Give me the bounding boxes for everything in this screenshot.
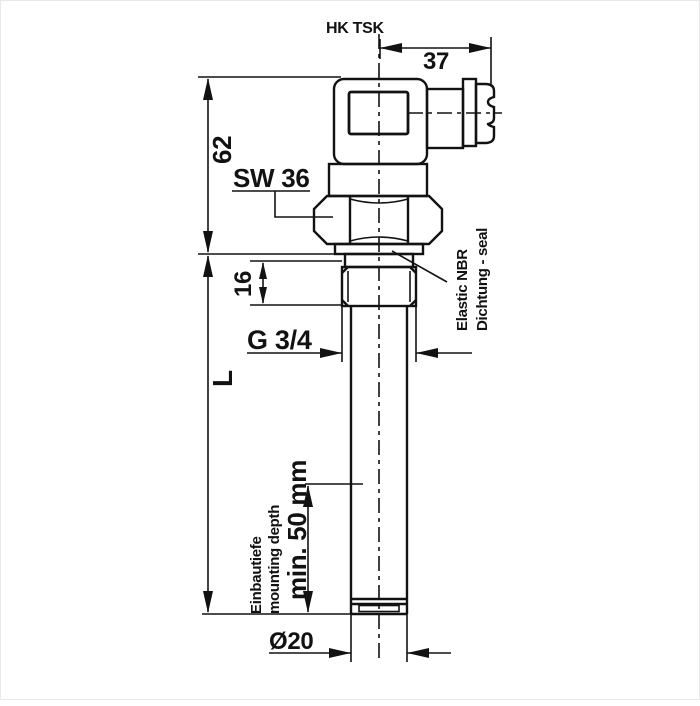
label-type: HK TSK: [326, 20, 385, 37]
dim-37-value: 37: [423, 48, 449, 75]
mounting-depth-label-en: mounting depth: [266, 505, 283, 614]
label-wrench-size: SW 36: [232, 163, 333, 217]
sw36-value: SW 36: [233, 163, 310, 193]
seal-label-en: Dichtung - seal: [474, 228, 491, 331]
mounting-depth-value: min. 50 mm: [282, 460, 312, 600]
seal-label-de: Elastic NBR: [454, 249, 471, 331]
dim-16-value: 16: [230, 271, 257, 297]
dim-L-value: L: [207, 370, 238, 387]
dim-62-value: 62: [207, 136, 237, 164]
dim-thread-size: G 3/4: [247, 307, 472, 362]
technical-drawing: 37 62 SW 36 16 Elastic NBR Dichtung - se…: [1, 1, 700, 701]
connector-head: [334, 79, 427, 164]
hex-nut: [314, 196, 442, 244]
dim-probe-diameter: Ø20: [269, 614, 451, 662]
dim-mounting-depth: min. 50 mm Einbautiefe mounting depth: [248, 460, 363, 614]
dim-d20-value: Ø20: [269, 628, 313, 655]
coupling-block: [329, 164, 427, 196]
mounting-depth-label-de: Einbautiefe: [248, 536, 265, 614]
dim-thread-length: 16: [230, 261, 342, 305]
dim-g34-value: G 3/4: [247, 325, 312, 355]
type-label-value: HK TSK: [326, 20, 385, 37]
technical-drawing-page: 37 62 SW 36 16 Elastic NBR Dichtung - se…: [0, 0, 700, 700]
